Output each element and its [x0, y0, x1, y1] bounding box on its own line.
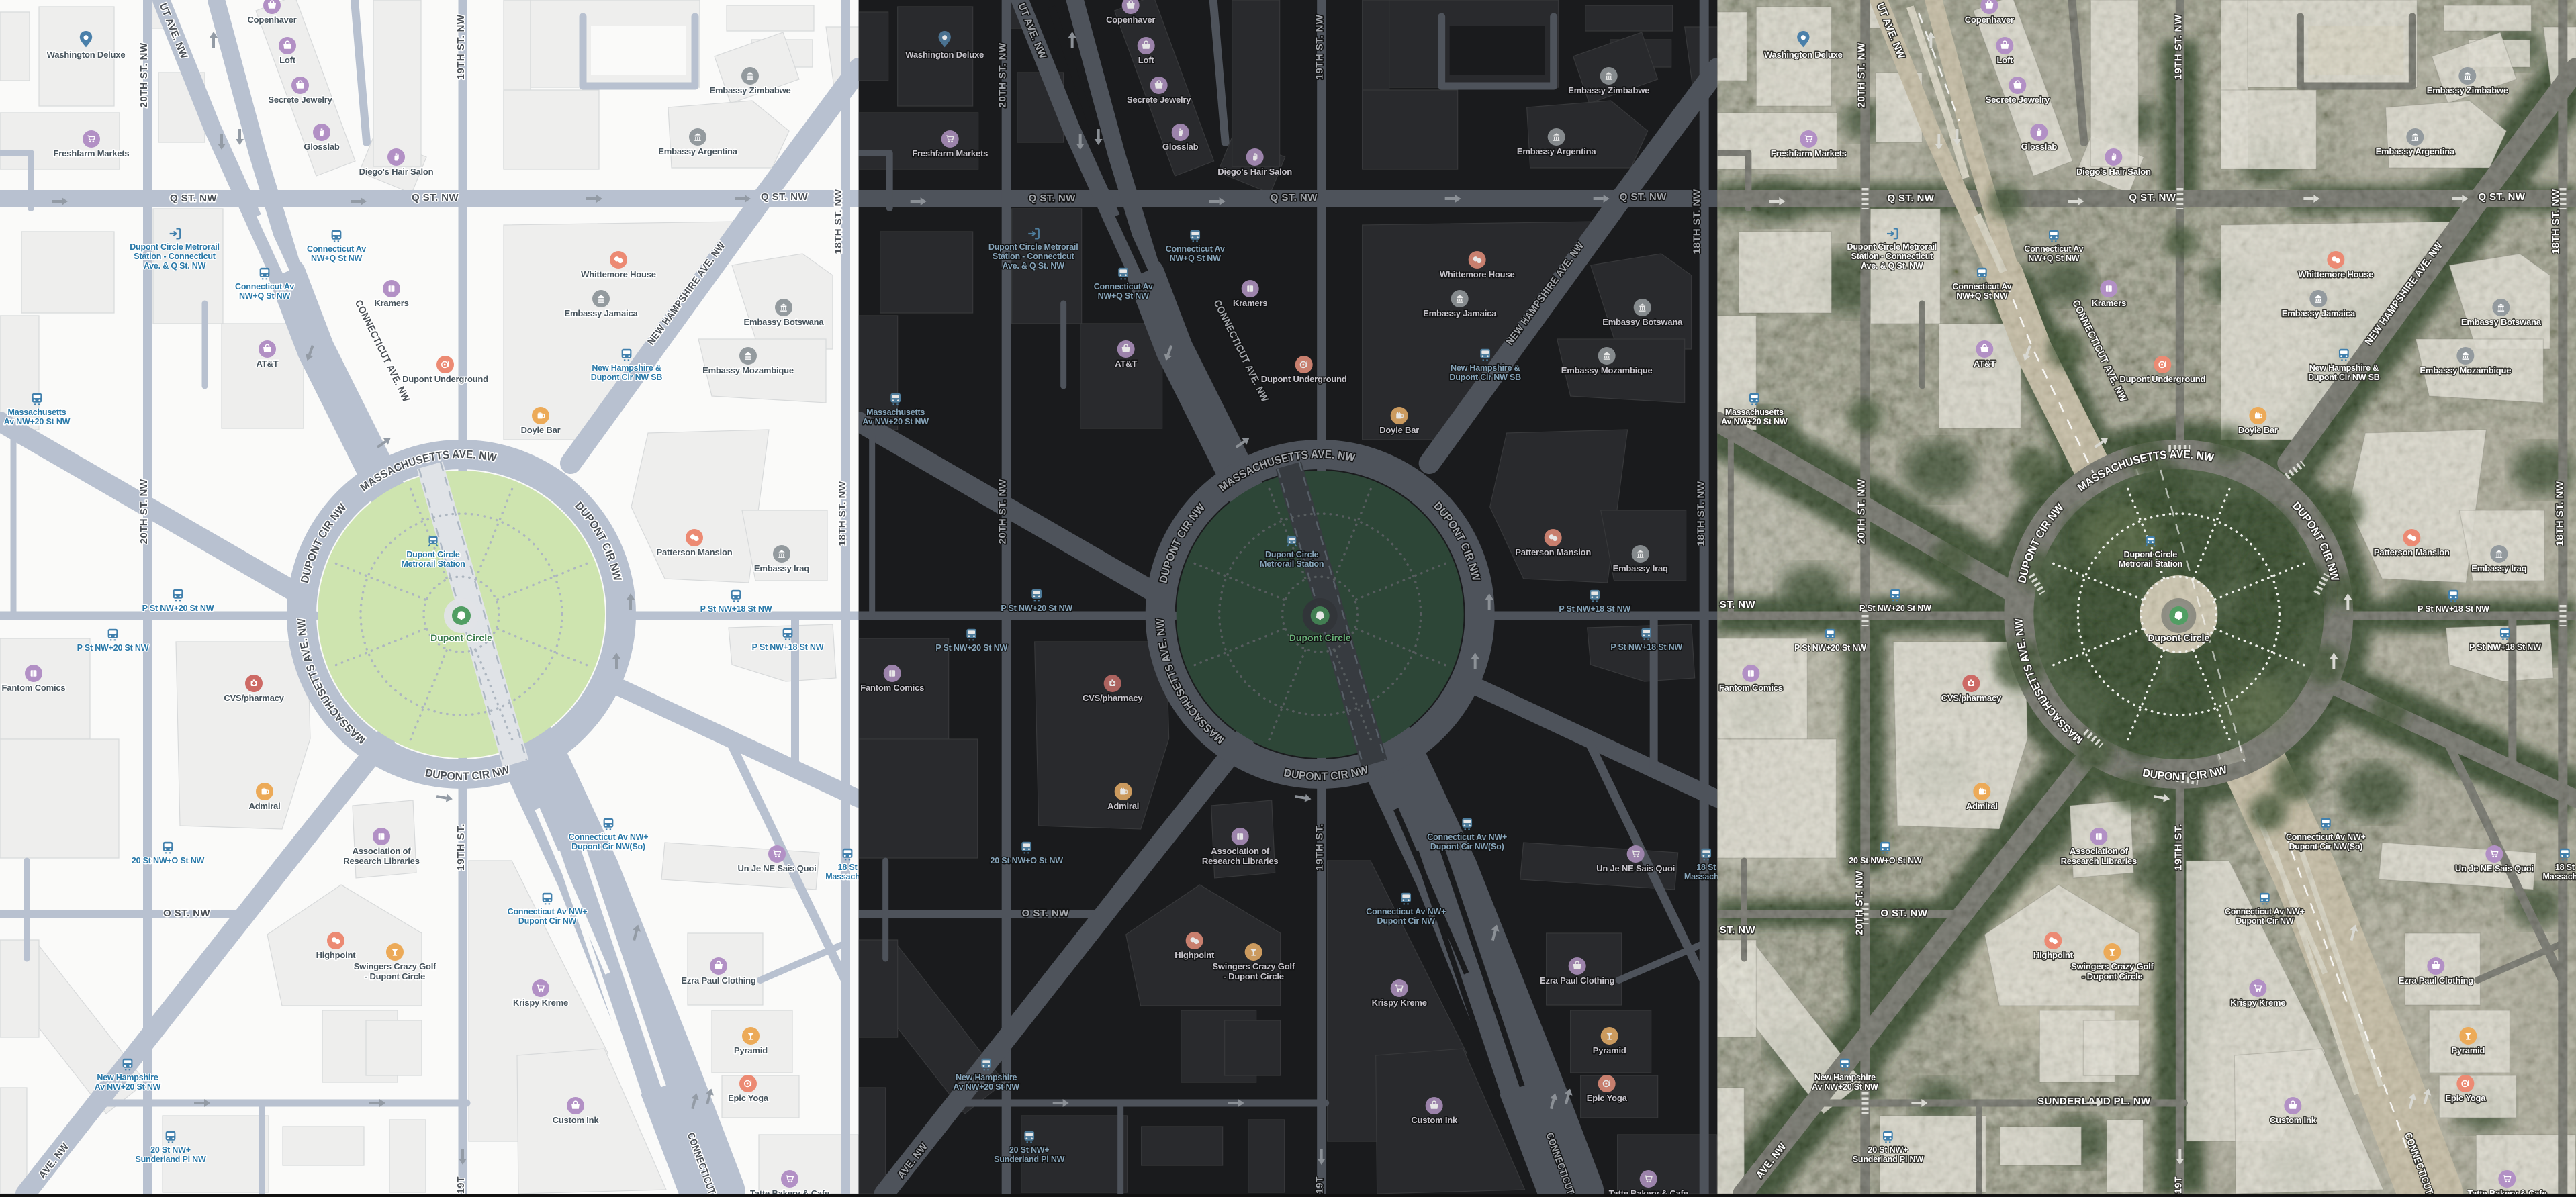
- svg-text:SUNDERLAND PL. NW: SUNDERLAND PL. NW: [2037, 1096, 2151, 1107]
- svg-text:ST. NW: ST. NW: [1720, 599, 1756, 610]
- svg-text:ST. NW: ST. NW: [1720, 924, 1756, 936]
- svg-text:20TH ST. NW: 20TH ST. NW: [1853, 871, 1865, 936]
